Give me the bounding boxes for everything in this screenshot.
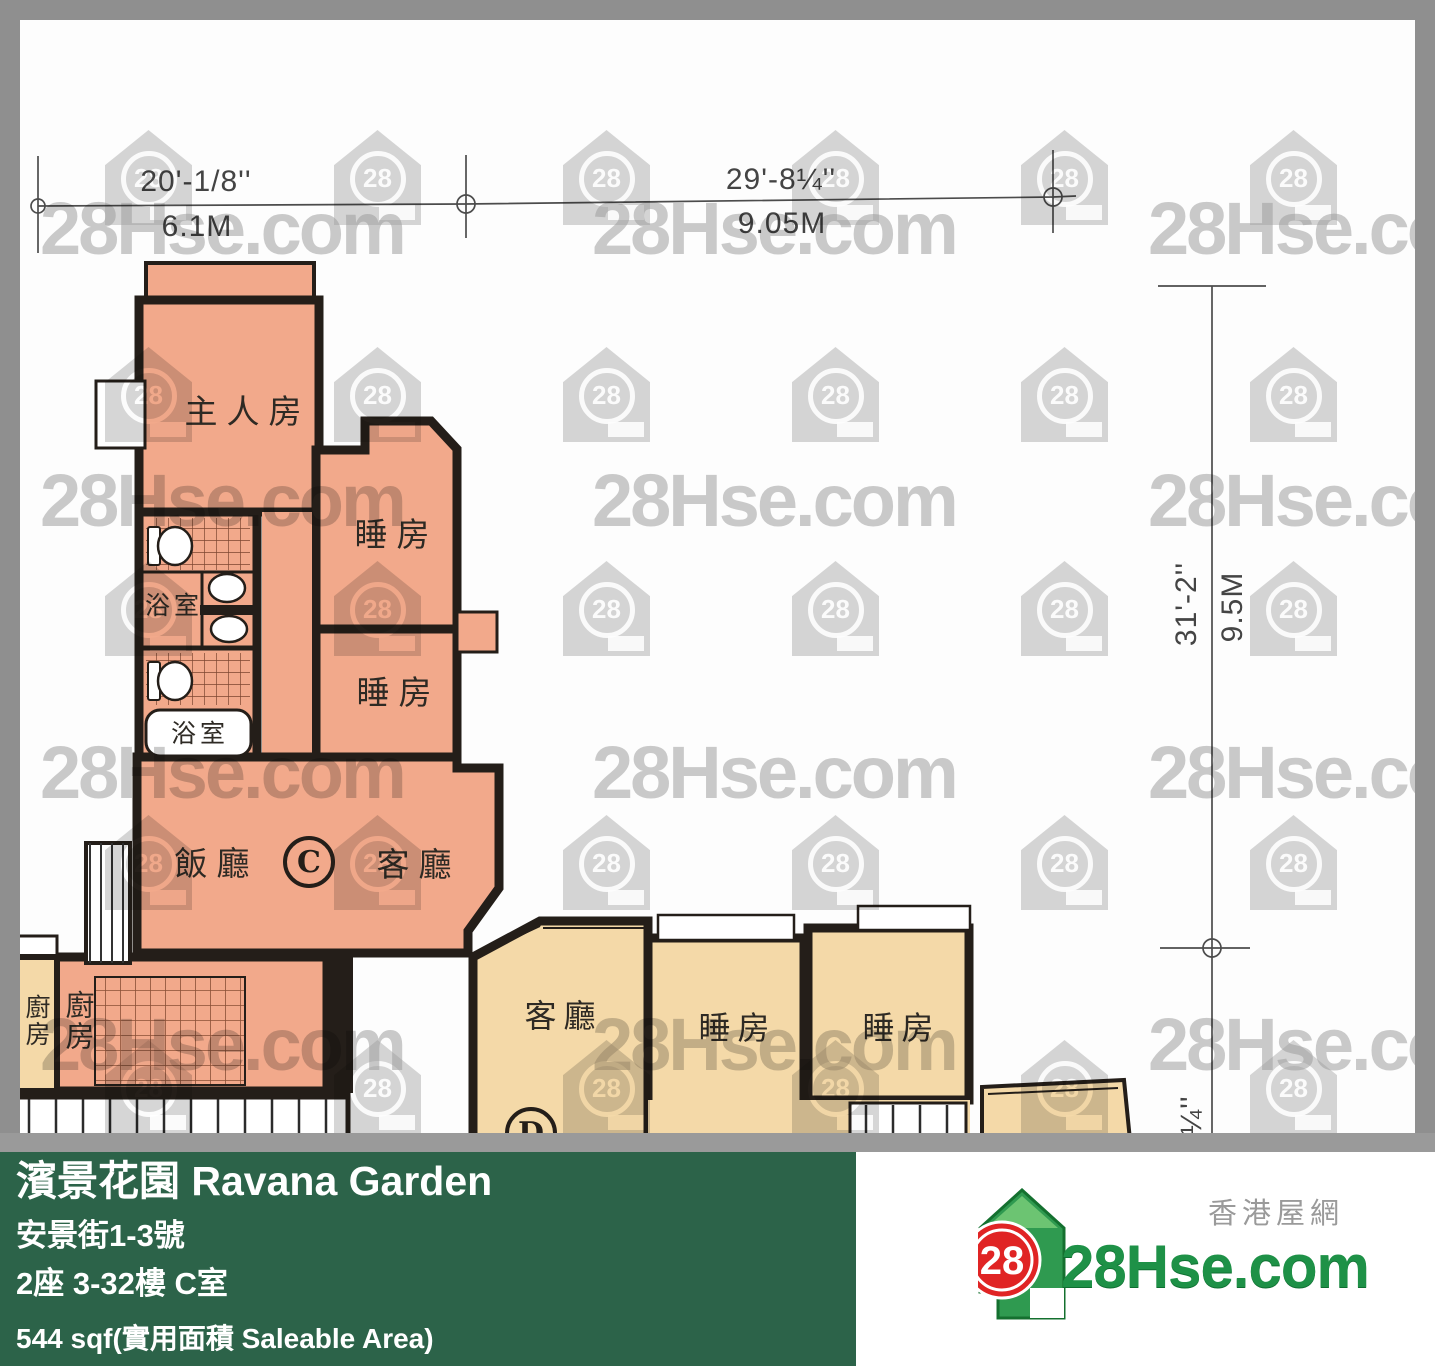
logo-house-icon: 28	[978, 1188, 1066, 1324]
property-address: 安景街1-3號	[16, 1219, 856, 1253]
property-info-panel: 濱景花園 Ravana Garden 安景街1-3號 2座 3-32樓 C室 5…	[0, 1152, 856, 1366]
unit-d-rooms	[473, 906, 1130, 1140]
floor-plan-page: 20'-1/8'' 6.1M 29'-8¼'' 9.05M 31'-2'' 9.…	[0, 0, 1435, 1366]
frame-border-left	[0, 0, 20, 1133]
frame-border-right	[1415, 0, 1435, 1133]
site-logo: 28 28Hse.com 香港屋網	[856, 1152, 1435, 1366]
logo-brand-text: 28Hse.com	[1061, 1232, 1369, 1301]
property-area: 544 sqf(實用面積 Saleable Area)	[16, 1317, 856, 1357]
logo-tagline: 香港屋網	[1208, 1190, 1344, 1232]
property-unit: 2座 3-32樓 C室	[16, 1267, 856, 1301]
logo-badge: 28	[980, 1239, 1025, 1283]
divider-strip	[0, 1133, 1435, 1152]
frame-border-top	[0, 0, 1435, 20]
footer: 濱景花園 Ravana Garden 安景街1-3號 2座 3-32樓 C室 5…	[0, 1152, 1435, 1366]
property-title: 濱景花園 Ravana Garden	[16, 1158, 856, 1205]
